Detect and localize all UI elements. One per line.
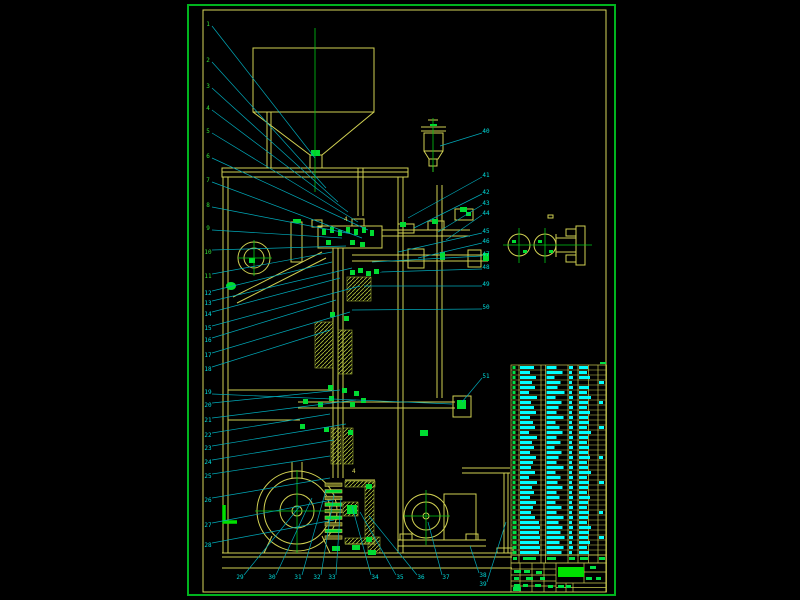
callout-number: 50	[482, 304, 490, 311]
feed-valve	[421, 120, 446, 172]
callout-number: 11	[204, 273, 212, 280]
callout-number: 37	[442, 574, 450, 581]
callout-number: 44	[482, 210, 490, 217]
hopper-downpipe	[358, 168, 363, 216]
callout-number: 7	[206, 177, 210, 184]
callout-number: 43	[482, 200, 490, 207]
callout-number: 32	[313, 574, 321, 581]
callout-number: 20	[204, 402, 212, 409]
callout-number: 27	[204, 522, 212, 529]
callout-number: 26	[204, 497, 212, 504]
callout-number: 13	[204, 300, 212, 307]
callout-number: 8	[206, 202, 210, 209]
callout-number: 49	[482, 281, 490, 288]
callout-number: 23	[204, 445, 212, 452]
callout-number: 45	[482, 228, 490, 235]
callout-number: 48	[482, 264, 490, 271]
cad-drawing-canvas[interactable]: 1234567891011121314151617181920212223242…	[0, 0, 800, 600]
callout-number: 24	[204, 459, 212, 466]
callout-number: 19	[204, 389, 212, 396]
guide-column	[437, 185, 442, 398]
callout-number: 5	[206, 128, 210, 135]
callout-number: 30	[268, 574, 276, 581]
callout-number: 4	[206, 105, 210, 112]
callout-number: 31	[294, 574, 302, 581]
callout-number: 33	[328, 574, 336, 581]
weld-symbol: 4	[344, 216, 348, 223]
callout-number: 35	[396, 574, 404, 581]
callout-number: 10	[204, 249, 212, 256]
callout-number: 40	[482, 128, 490, 135]
callout-number: 9	[206, 225, 210, 232]
callout-number: 46	[482, 238, 490, 245]
callout-number: 15	[204, 325, 212, 332]
cad-application-viewport[interactable]: 1234567891011121314151617181920212223242…	[0, 0, 800, 600]
callout-number: 12	[204, 290, 212, 297]
callout-number: 14	[204, 311, 212, 318]
callout-number: 29	[236, 574, 244, 581]
title-text-highlight	[558, 567, 584, 577]
callout-number: 36	[417, 574, 425, 581]
callout-number: 6	[206, 153, 210, 160]
callout-number: 42	[482, 189, 490, 196]
callout-number: 28	[204, 542, 212, 549]
leader-lines	[212, 26, 506, 582]
roller-flange-detail	[508, 215, 585, 265]
callout-number: 34	[371, 574, 379, 581]
callout-number: 1	[206, 21, 210, 28]
callout-number: 2	[206, 57, 210, 64]
centerlines	[238, 28, 592, 553]
motor	[398, 494, 486, 546]
weld-symbol: 4	[352, 468, 356, 475]
callout-number: 18	[204, 366, 212, 373]
callout-number: 3	[206, 83, 210, 90]
callout-number: 22	[204, 432, 212, 439]
callout-number: 47	[482, 251, 490, 258]
bom-parts-table	[511, 365, 607, 563]
frame-left-column	[223, 177, 228, 553]
callout-number: 38	[479, 572, 487, 579]
callout-number: 25	[204, 473, 212, 480]
callout-number: 39	[479, 581, 487, 588]
callout-number: 21	[204, 417, 212, 424]
mid-shaft-jack	[298, 396, 471, 417]
callout-number: 16	[204, 337, 212, 344]
callout-number: 17	[204, 352, 212, 359]
callout-number: 51	[482, 373, 490, 380]
callout-number: 41	[482, 172, 490, 179]
